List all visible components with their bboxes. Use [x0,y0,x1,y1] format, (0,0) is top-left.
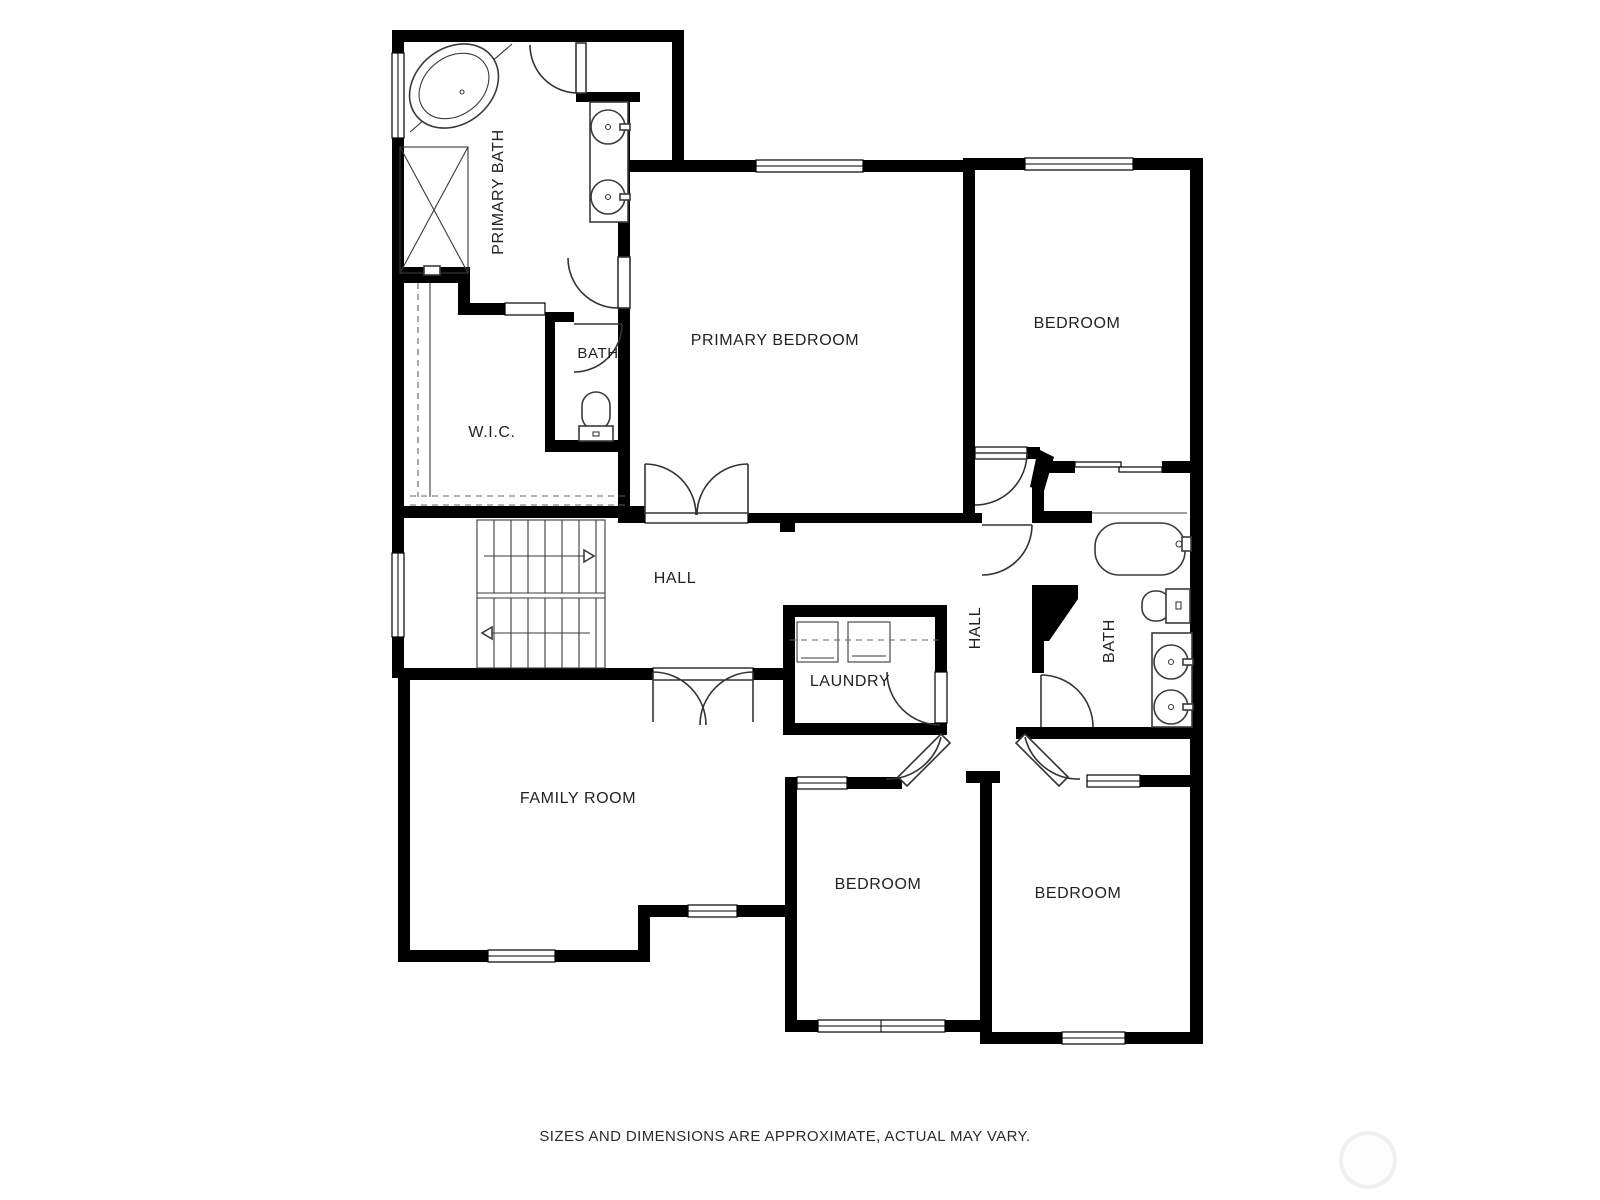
stairs-icon [477,520,605,668]
room-label-bedroom-bottom-right: BEDROOM [1035,885,1122,902]
room-label-hall-east: HALL [967,607,984,649]
room-label-family-room: FAMILY ROOM [520,790,636,807]
floor-plan-canvas: PRIMARY BATH BATH W.I.C. PRIMARY BEDROOM… [0,0,1600,1200]
cased-opening [505,303,545,315]
window [818,1020,945,1032]
toilet-icon [579,392,613,441]
stair-direction-arrows [482,550,594,639]
door [1041,675,1093,727]
corner-tub-icon [393,27,515,146]
window [488,950,555,962]
room-label-wic: W.I.C. [468,424,515,441]
room-label-primary-bedroom: PRIMARY BEDROOM [691,332,859,349]
room-label-laundry: LAUNDRY [810,673,890,690]
window [688,905,737,917]
room-label-bedroom-top-right: BEDROOM [1034,315,1121,332]
room-label-primary-bath: PRIMARY BATH [490,129,507,254]
door [982,525,1032,575]
angled-door [1016,734,1080,786]
window [756,160,863,172]
toilet-icon [1142,589,1190,623]
angled-door [886,734,950,786]
bypass-sliding-door [1075,462,1162,472]
double-vanity-icon [590,102,630,222]
bathtub-icon [1092,513,1191,575]
washer-dryer-icon [790,622,938,662]
disclaimer-text: SIZES AND DIMENSIONS ARE APPROXIMATE, AC… [539,1128,1030,1145]
double-door [653,668,753,725]
shower-icon [400,147,468,275]
door [530,43,586,93]
window [1087,775,1140,787]
double-vanity-icon [1152,633,1193,727]
window [392,553,404,637]
window [392,53,404,138]
door [887,672,947,725]
room-label-bath-east: BATH [1101,619,1118,663]
door [975,447,1027,505]
room-label-bedroom-bottom-left: BEDROOM [835,876,922,893]
double-door [645,464,748,523]
window [1062,1032,1125,1044]
window [797,777,847,789]
window [1025,158,1133,170]
door [568,257,630,308]
room-label-bath-wc: BATH [577,345,618,362]
watermark-logo [1341,1133,1395,1187]
floor-plan-page: PRIMARY BATH BATH W.I.C. PRIMARY BEDROOM… [0,0,1600,1200]
room-label-hall: HALL [654,570,696,587]
